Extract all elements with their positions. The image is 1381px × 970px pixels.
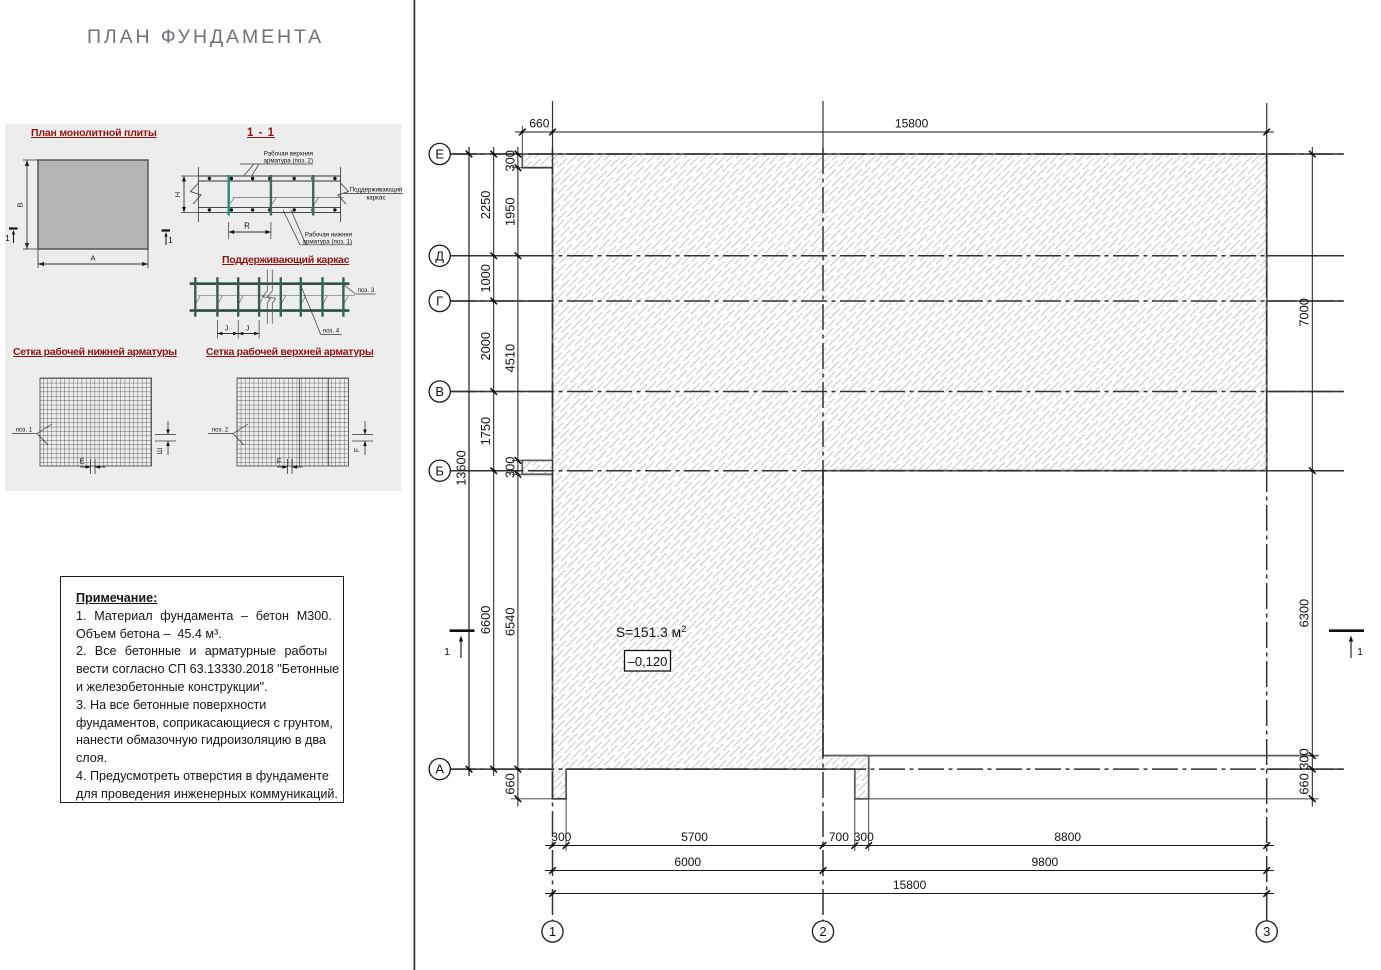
svg-text:2: 2 (819, 924, 826, 939)
svg-text:8800: 8800 (1054, 830, 1081, 844)
svg-text:F: F (277, 457, 282, 466)
svg-text:2000: 2000 (478, 332, 493, 360)
svg-text:поз. 1: поз. 1 (16, 427, 33, 434)
svg-text:В: В (435, 384, 444, 399)
svg-text:6600: 6600 (478, 606, 493, 634)
svg-text:1: 1 (549, 924, 556, 939)
svg-text:13600: 13600 (453, 450, 468, 486)
svg-text:A: A (90, 254, 95, 263)
svg-text:B: B (16, 202, 25, 207)
svg-text:7000: 7000 (1297, 298, 1312, 326)
svg-text:поз. 3: поз. 3 (358, 287, 375, 294)
svg-text:1: 1 (168, 235, 173, 245)
svg-text:арматура (поз. 2): арматура (поз. 2) (263, 158, 313, 165)
svg-text:J: J (225, 326, 229, 333)
svg-text:1950: 1950 (502, 198, 517, 226)
svg-text:6300: 6300 (1297, 599, 1312, 627)
svg-text:Ш: Ш (157, 448, 164, 454)
svg-text:E: E (79, 457, 84, 466)
svg-text:каркас: каркас (366, 195, 385, 202)
svg-text:300: 300 (502, 150, 517, 171)
svg-text:J: J (246, 326, 250, 333)
svg-text:300: 300 (502, 457, 517, 478)
svg-text:660: 660 (502, 773, 517, 794)
svg-text:300: 300 (854, 830, 874, 844)
svg-text:Д: Д (435, 248, 444, 263)
svg-text:S=151.3 м2: S=151.3 м2 (616, 624, 686, 640)
svg-text:Б: Б (435, 463, 444, 478)
svg-text:6540: 6540 (502, 607, 517, 635)
svg-text:15800: 15800 (895, 117, 929, 131)
svg-text:Рабочая верхняя: Рабочая верхняя (264, 151, 313, 158)
svg-text:700: 700 (829, 830, 849, 844)
svg-text:F: F (354, 448, 361, 452)
svg-text:1000: 1000 (478, 264, 493, 292)
svg-text:5700: 5700 (681, 830, 708, 844)
svg-text:4510: 4510 (502, 344, 517, 372)
svg-text:1: 1 (1357, 646, 1363, 658)
svg-text:H: H (173, 192, 182, 197)
svg-text:1: 1 (5, 233, 10, 243)
svg-text:2250: 2250 (478, 191, 493, 219)
svg-text:Г: Г (436, 294, 443, 309)
svg-text:660: 660 (1297, 773, 1312, 794)
svg-text:поз. 2: поз. 2 (212, 427, 229, 434)
svg-text:Поддерживающий: Поддерживающий (350, 187, 403, 194)
svg-text:300: 300 (551, 830, 571, 844)
svg-text:1: 1 (444, 646, 450, 658)
svg-text:3: 3 (1263, 924, 1270, 939)
svg-text:1750: 1750 (478, 417, 493, 445)
svg-text:660: 660 (529, 117, 549, 131)
svg-text:6000: 6000 (674, 855, 701, 869)
svg-text:15800: 15800 (893, 878, 927, 892)
svg-text:поз. 4: поз. 4 (323, 328, 340, 335)
svg-text:Рабочая нижняя: Рабочая нижняя (305, 232, 352, 239)
svg-text:9800: 9800 (1031, 855, 1058, 869)
svg-text:А: А (435, 762, 444, 777)
svg-text:R: R (244, 222, 250, 231)
svg-text:–0,120: –0,120 (628, 654, 668, 669)
svg-text:Е: Е (435, 147, 444, 162)
svg-text:300: 300 (1297, 748, 1312, 769)
